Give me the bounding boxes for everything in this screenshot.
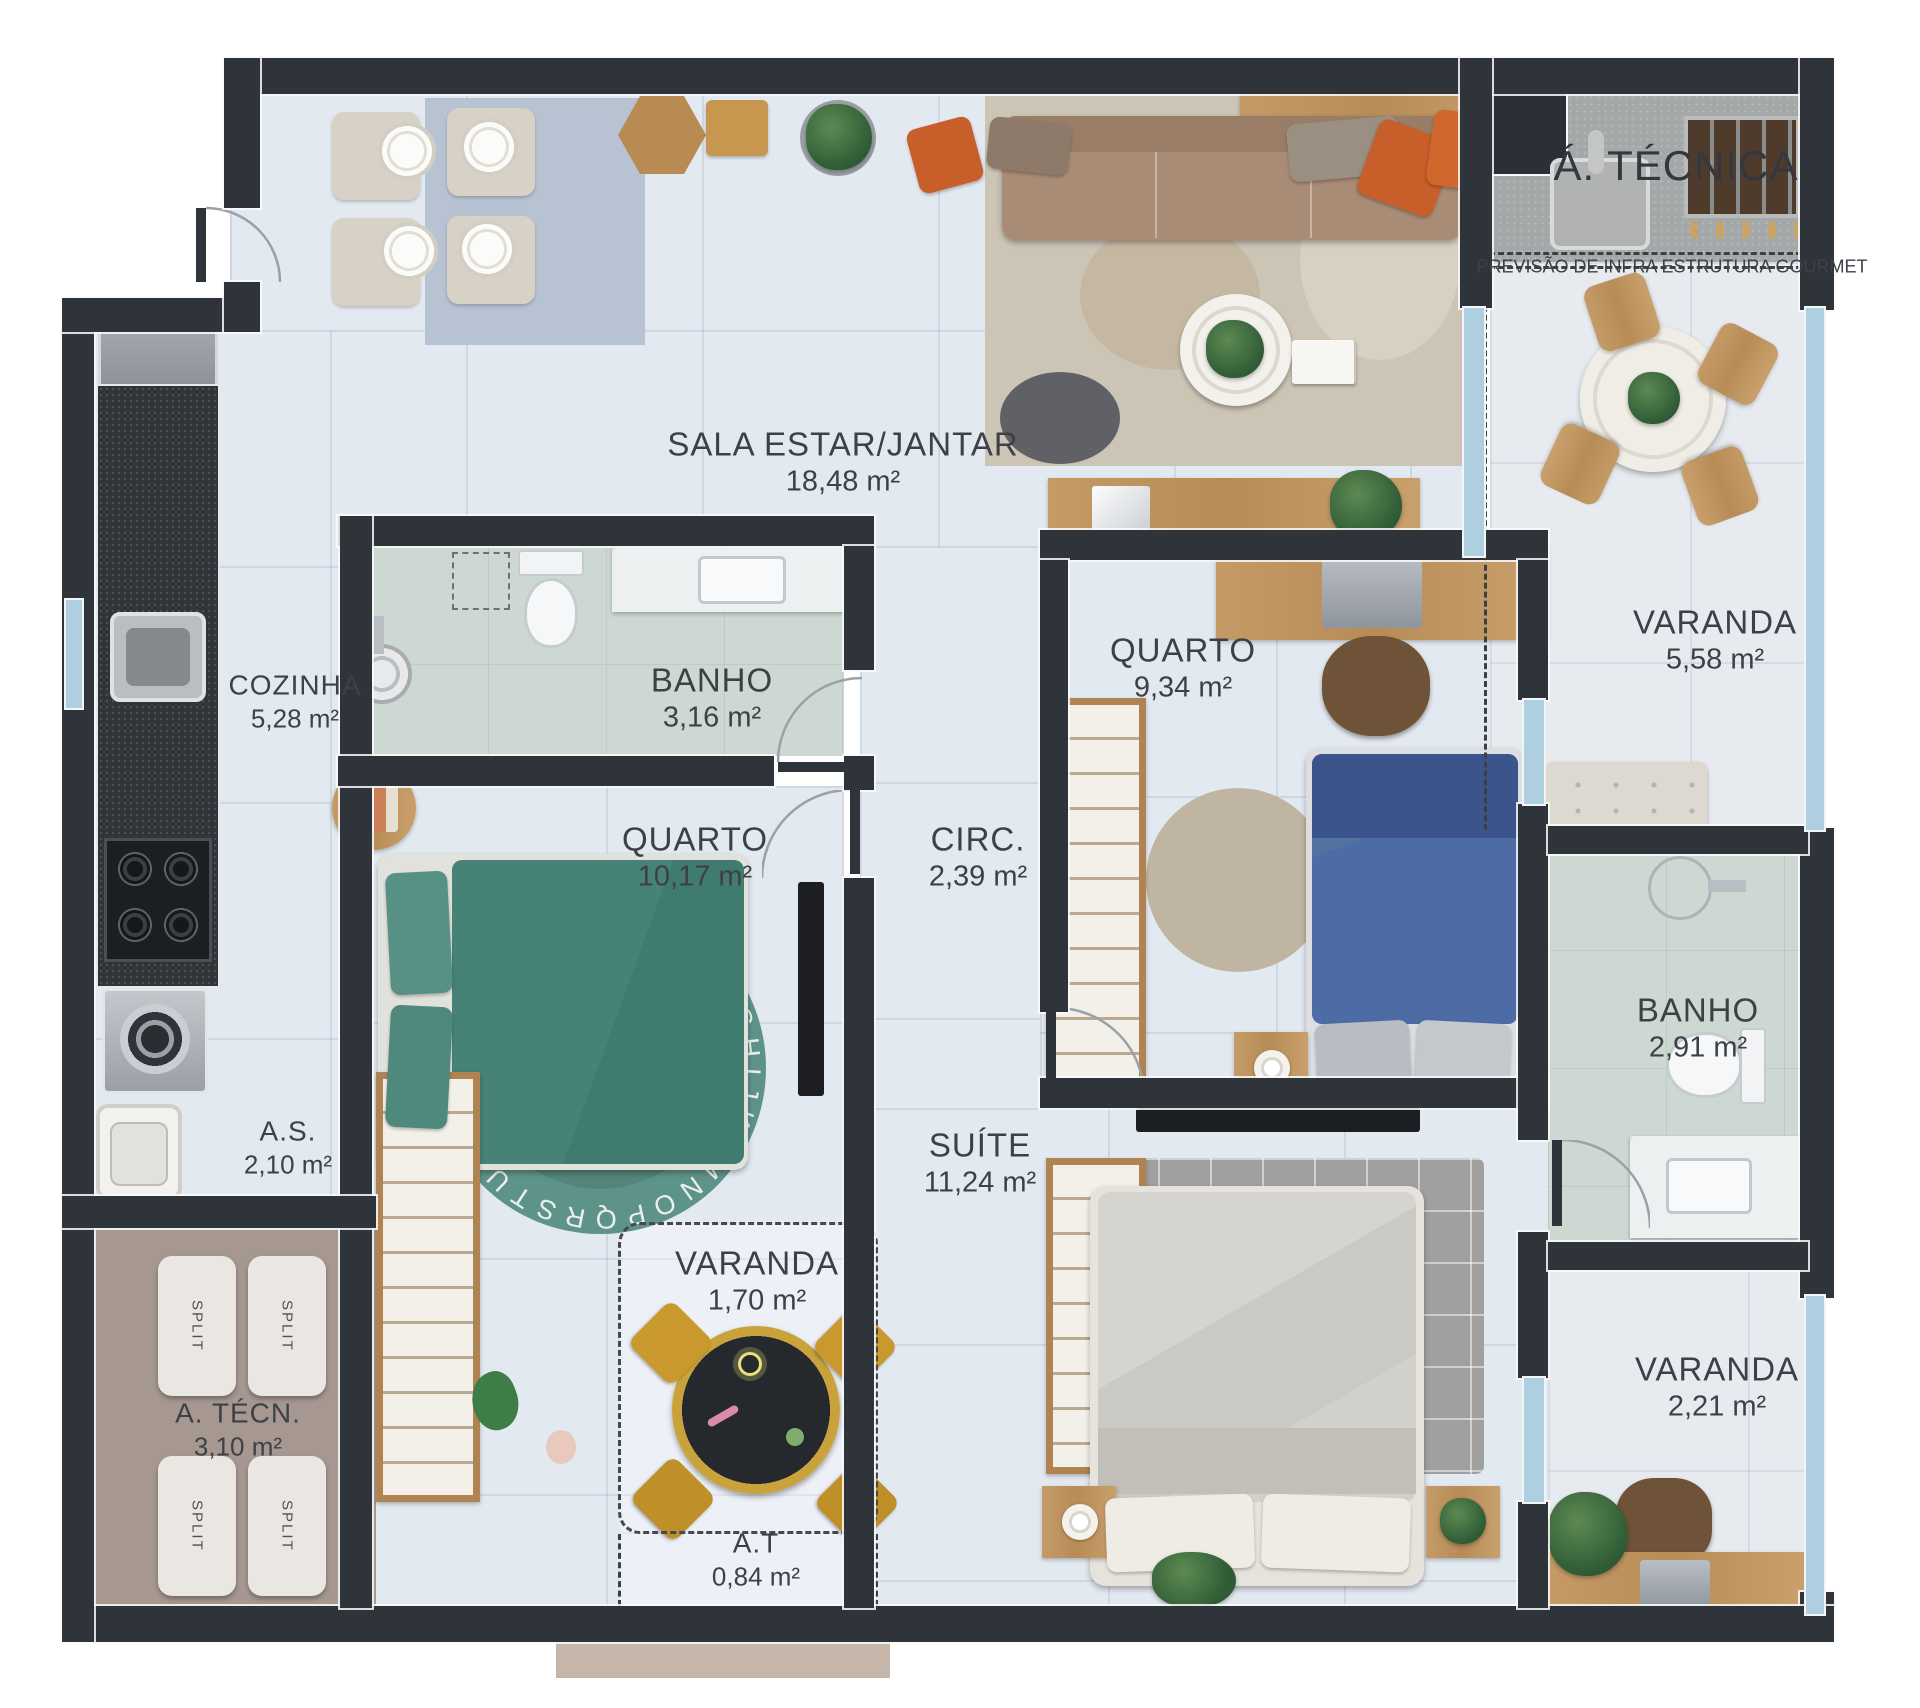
quarto2-wardrobe: [376, 1072, 480, 1502]
quarto2-pillow: [385, 1004, 453, 1129]
quarto1-round-rug: [1146, 788, 1330, 972]
sofa-cushion-seam: [1155, 152, 1157, 238]
wall-segment: [1548, 1242, 1808, 1270]
stove-burner: [116, 906, 154, 944]
quarto1-laptop: [1322, 556, 1422, 628]
room-label-area-tecnica-superior: Á. TÉCNICA: [1554, 142, 1799, 190]
laundry-tub-basin: [110, 1122, 168, 1186]
balcony-glass: [1804, 306, 1826, 832]
wall-segment: [1518, 1502, 1548, 1608]
varanda-suite-laptop: [1640, 1560, 1710, 1610]
wall-segment: [224, 58, 260, 208]
console-tablet: [1092, 486, 1150, 536]
wall-segment: [338, 756, 774, 786]
room-label-banho-1: BANHO 3,16 m²: [651, 662, 773, 735]
door-leaf: [196, 208, 206, 282]
quarto2-tv: [798, 882, 824, 1096]
dinner-plate: [458, 220, 516, 278]
quarto2-bed-blanket: [452, 860, 744, 1164]
room-label-area-tecnica-inferior: A. TÉCN. 3,10 m²: [175, 1398, 301, 1463]
door-swing-arc: [762, 790, 850, 878]
coffee-table-plant: [1206, 320, 1264, 378]
wall-segment: [844, 878, 874, 1608]
wall-segment: [1040, 1078, 1548, 1108]
balcony-glass: [1804, 1294, 1826, 1616]
suite-tv: [1136, 1108, 1420, 1132]
room-label-cozinha: COZINHA 5,28 m²: [229, 670, 362, 735]
door-swing-arc: [1562, 1140, 1650, 1228]
door-leaf: [778, 762, 860, 772]
door-leaf: [850, 790, 860, 874]
door-leaf: [1552, 1140, 1562, 1226]
wall-segment: [1800, 828, 1834, 1298]
room-label-area-servico: A.S. 2,10 m²: [244, 1116, 332, 1181]
room-label-banho-2: BANHO 2,91 m²: [1637, 992, 1759, 1065]
wall-segment: [844, 546, 874, 670]
banho2-shower-head: [1648, 856, 1712, 920]
room-label-quarto-1: QUARTO 9,34 m²: [1110, 632, 1256, 705]
stove-burner: [116, 850, 154, 888]
door-swing-arc: [206, 206, 282, 282]
open-book: [1292, 340, 1356, 384]
room-label-varanda-gourmet: VARANDA 5,58 m²: [1633, 604, 1797, 677]
annotation-previsao-gourmet: PREVISÃO DE INFRA ESTRUTURA GOURMET: [1476, 257, 1867, 278]
wall-segment: [1040, 560, 1068, 1012]
room-label-quarto-2: QUARTO 10,17 m²: [622, 821, 768, 894]
window-glass: [64, 598, 84, 710]
dinner-plate: [380, 222, 438, 280]
stove-burner: [162, 906, 200, 944]
room-label-circulacao: CIRC. 2,39 m²: [929, 821, 1027, 894]
banho1-vanity-sink: [698, 556, 786, 604]
at-pequena-boundary-left: [618, 1534, 621, 1606]
dinner-plate: [460, 118, 518, 176]
door-leaf: [1046, 1008, 1056, 1094]
washing-machine-door: [120, 1004, 190, 1074]
bistro-table-plant: [1628, 372, 1680, 424]
wall-segment: [1518, 804, 1548, 1140]
plant-sala: [806, 104, 872, 170]
wall-segment: [62, 298, 94, 1642]
banho1-shower-drain: [452, 552, 510, 610]
sliding-door-glass: [1462, 306, 1486, 558]
suite-floor-plant: [1152, 1552, 1236, 1608]
window-glass: [1522, 698, 1546, 806]
wall-segment: [1548, 826, 1808, 854]
at-pequena-boundary-right: [875, 1534, 878, 1606]
wall-segment: [62, 1196, 376, 1228]
wall-segment: [62, 1606, 1834, 1642]
toy-pacifier: [546, 1430, 576, 1464]
quarto2-pillow: [385, 870, 453, 995]
varanda-suite-plant: [1548, 1492, 1628, 1576]
room-label-at-pequena: A.T 0,84 m²: [712, 1528, 800, 1593]
stove-burner: [162, 850, 200, 888]
dinner-plate: [378, 122, 436, 180]
exterior-strip: [556, 1642, 890, 1678]
split-condenser-unit: SPLIT: [158, 1256, 236, 1396]
banho2-vanity-sink: [1666, 1158, 1752, 1214]
serving-tray: [706, 100, 768, 156]
split-condenser-unit: SPLIT: [158, 1456, 236, 1596]
banho1-shower-arm: [372, 616, 384, 654]
door-swing-arc: [776, 676, 862, 762]
tufted-bench: [1545, 762, 1707, 836]
window-glass: [1522, 1376, 1546, 1504]
suite-lamp: [1062, 1504, 1098, 1540]
floor-plan: ABCDEFGHIJKLMNOPQRSTUVWXYZ: [0, 0, 1920, 1708]
room-label-varanda-suite: VARANDA 2,21 m²: [1635, 1351, 1799, 1424]
quarto1-desk-chair: [1322, 636, 1430, 736]
quarto1-bed-fold: [1312, 754, 1518, 838]
kitchen-sink-basin: [126, 628, 190, 686]
suite-bed-throw: [1098, 1428, 1416, 1494]
grill-tools: [1690, 222, 1798, 238]
wall-segment: [1518, 1232, 1548, 1378]
suite-nightstand-plant: [1440, 1498, 1486, 1544]
suite-pillow: [1261, 1493, 1411, 1572]
gourmet-boundary: [1480, 252, 1802, 255]
banho1-toilet-tank: [518, 550, 584, 576]
split-condenser-unit: SPLIT: [248, 1256, 326, 1396]
banho2-shower-arm: [1708, 880, 1746, 892]
wall-segment: [338, 516, 874, 546]
split-condenser-unit: SPLIT: [248, 1456, 326, 1596]
wall-segment: [1518, 560, 1548, 700]
wall-segment: [224, 58, 1808, 94]
sofa-pillow-taupe: [986, 116, 1073, 176]
wall-segment: [224, 282, 260, 332]
room-label-varanda-kids: VARANDA 1,70 m²: [675, 1245, 839, 1318]
room-label-sala: SALA ESTAR/JANTAR 18,48 m²: [667, 426, 1018, 499]
room-label-suite: SUÍTE 11,24 m²: [924, 1127, 1036, 1200]
banho1-toilet-bowl: [524, 578, 578, 648]
